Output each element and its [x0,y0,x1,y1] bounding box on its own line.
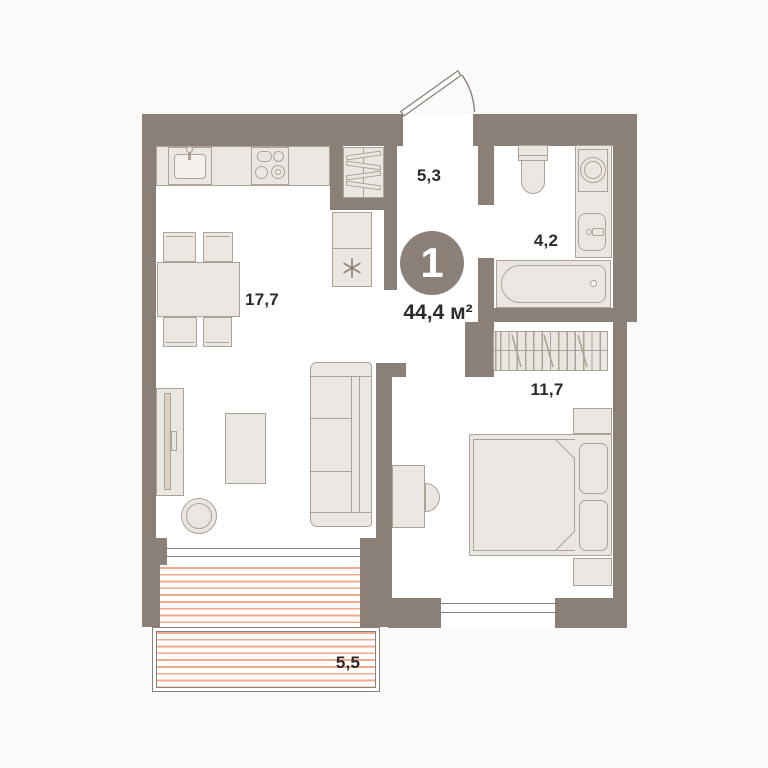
wall-top-left [142,114,403,146]
dining-table [157,262,240,317]
bed-blanket [473,439,575,551]
wall-bottom-left-corner [142,538,167,565]
bathtub-drain [590,280,597,287]
stove-burner-small [273,151,284,162]
wall-left-lower [142,565,160,627]
tv-panel [164,393,171,490]
bathroom-faucet-handle [592,228,604,236]
room-area-label-living-kitchen: 17,7 [245,290,279,310]
balcony-upper-hatch [160,567,360,627]
entrance-door-icon [401,71,475,116]
chair-back-line-4 [206,342,229,343]
room-area-label-hallway: 5,3 [417,166,441,186]
sofa-back-line-1 [351,376,352,513]
nightstand-top [573,408,612,434]
kitchen-cabinet-divider [332,248,372,249]
nightstand-bottom [573,558,612,586]
wall-bath-bottom [478,308,637,322]
desk [392,465,425,528]
wall-left [142,114,156,565]
tv-mount [171,431,177,451]
room-area-label-bedroom: 11,7 [531,380,564,400]
sofa-cushion-line-2 [310,471,352,472]
wall-bedroom-bottom-right [555,598,613,628]
bed-pillow-1 [579,443,608,494]
bed-pillow-2 [579,500,608,551]
stove-burner-double-inner [275,169,281,175]
wall-right-bathroom [613,114,637,318]
rooms-count-badge: 1 [400,231,464,295]
toilet-bowl [521,160,545,194]
wall-hall-bath-stub [478,146,494,205]
stove-burner-medium [255,166,268,179]
sofa [310,362,372,527]
sofa-armrest-bottom-line [310,512,372,513]
chair-back-line-2 [206,236,230,237]
bedroom-window [441,603,555,613]
entrance-opening [403,114,473,146]
chair-back-line-3 [166,342,194,343]
sofa-back-line-2 [359,376,360,513]
toilet-tank-line [519,155,547,156]
wall-right-bedroom [613,318,627,628]
wall-bath-left-lower [478,258,494,310]
kitchen-faucet-knob [186,146,193,153]
kitchen-tall-cabinet [332,212,372,287]
sofa-armrest-top-line [310,376,372,377]
floor-plan: 17,7 5,3 4,2 11,7 5,5 1 44,4 м² [0,0,768,768]
room-area-label-balcony: 5,5 [336,653,360,673]
sofa-cushion-line-1 [310,418,352,419]
wall-bedroom-bottom-left [388,598,441,628]
room-area-label-bathroom: 4,2 [534,231,558,251]
wardrobe-rod [494,350,607,351]
rooms-count-number: 1 [420,239,443,287]
total-area-label: 44,4 м² [403,301,472,325]
living-room-window [167,548,360,557]
pouf-inner [186,503,212,529]
washing-machine-door-inner [584,161,602,179]
wall-divider-cap [376,363,406,377]
coffee-table [225,413,266,484]
wall-bedroom-nw-block [465,322,494,377]
stove-burner-oval [257,151,272,162]
wall-kitchen-right [384,146,397,290]
chair-back-line-1 [166,236,193,237]
wardrobe [493,331,608,371]
toilet-tank [518,145,548,161]
